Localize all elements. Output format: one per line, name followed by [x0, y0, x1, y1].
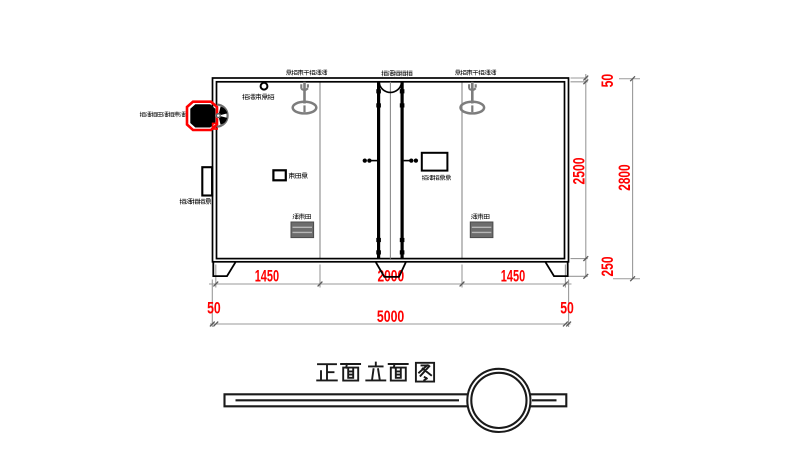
- svg-text:50: 50: [599, 74, 617, 88]
- svg-text:5000: 5000: [377, 308, 404, 326]
- svg-text:50: 50: [560, 300, 574, 318]
- svg-text:250: 250: [599, 257, 617, 277]
- svg-text:1450: 1450: [501, 267, 525, 285]
- svg-text:1450: 1450: [255, 267, 279, 285]
- svg-text:2800: 2800: [616, 164, 634, 190]
- svg-text:50: 50: [207, 300, 221, 318]
- svg-text:2500: 2500: [570, 158, 588, 185]
